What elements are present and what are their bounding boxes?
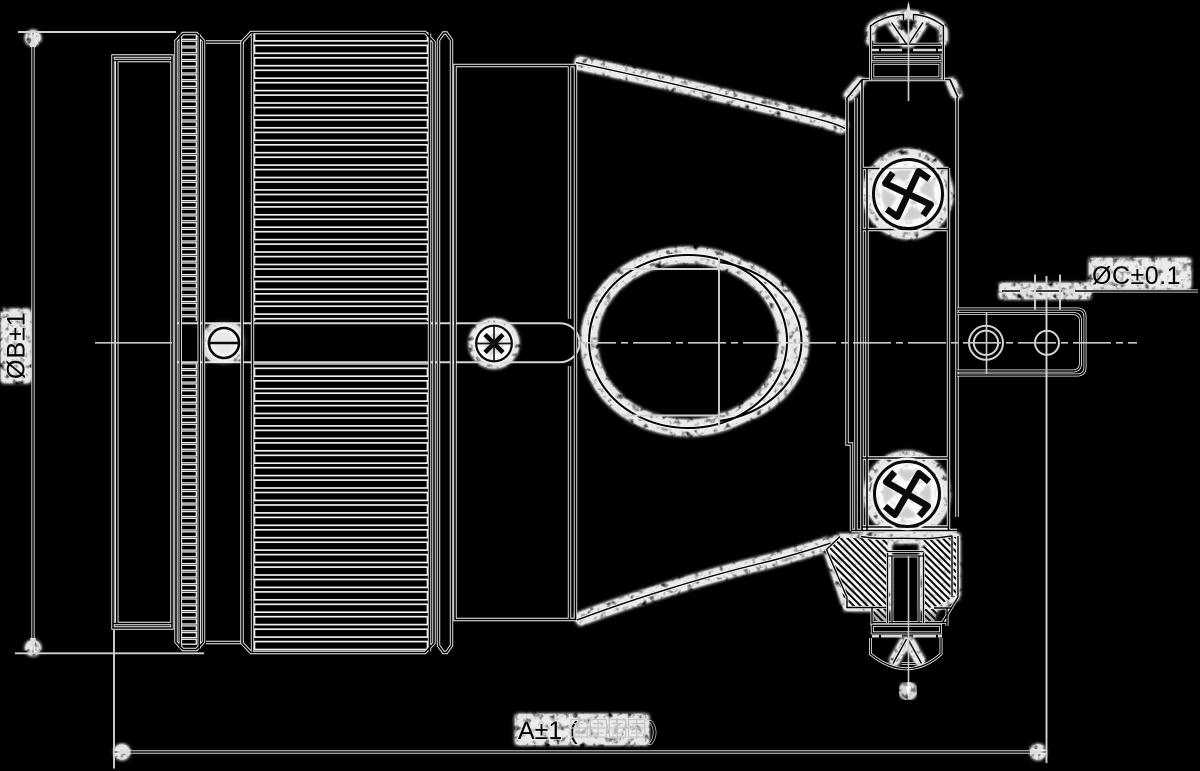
svg-text:A±1 (: A±1 ( — [518, 717, 578, 745]
svg-text:ØB±1: ØB±1 — [3, 311, 31, 379]
svg-text:): ) — [649, 717, 657, 745]
svg-text:ØC±0.1: ØC±0.1 — [1092, 262, 1181, 290]
